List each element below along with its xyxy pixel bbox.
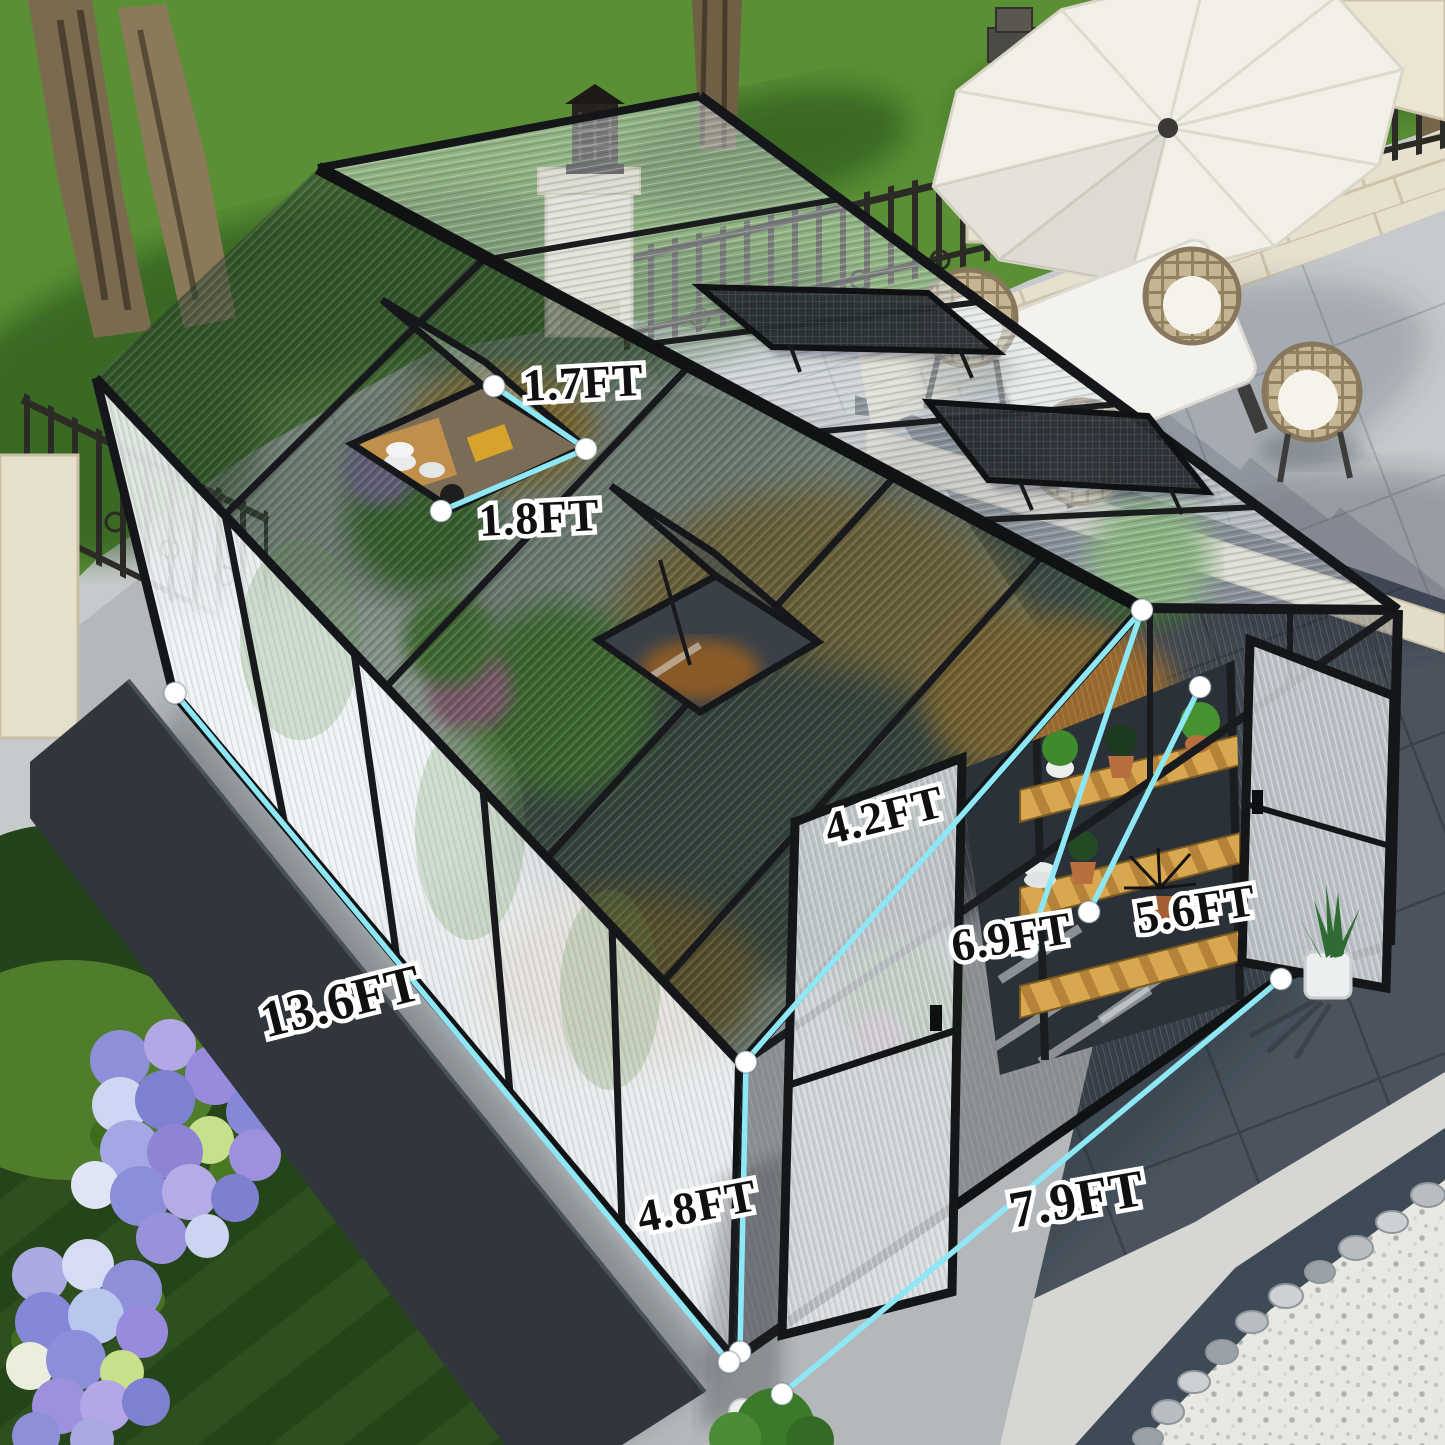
dimension-label-roof-vent-width: 1.7FT	[521, 354, 645, 411]
door-handle	[1252, 790, 1263, 814]
stone-pier-left	[0, 455, 78, 738]
scene-canvas: 1.7FT 1.8FT 4.2FT 5.6FT 6.9FT 13.6FT 4.8…	[0, 0, 1445, 1445]
greenhouse-product-image: 1.7FT 1.8FT 4.2FT 5.6FT 6.9FT 13.6FT 4.8…	[0, 0, 1445, 1445]
door-handle	[930, 1005, 942, 1031]
wicker-chair	[1145, 249, 1239, 343]
wicker-chair	[1260, 344, 1364, 482]
dimension-label-roof-vent-length: 1.8FT	[477, 489, 601, 546]
hydrangea-bush-2	[6, 1239, 170, 1445]
greenhouse-door-open-right	[1242, 640, 1394, 988]
